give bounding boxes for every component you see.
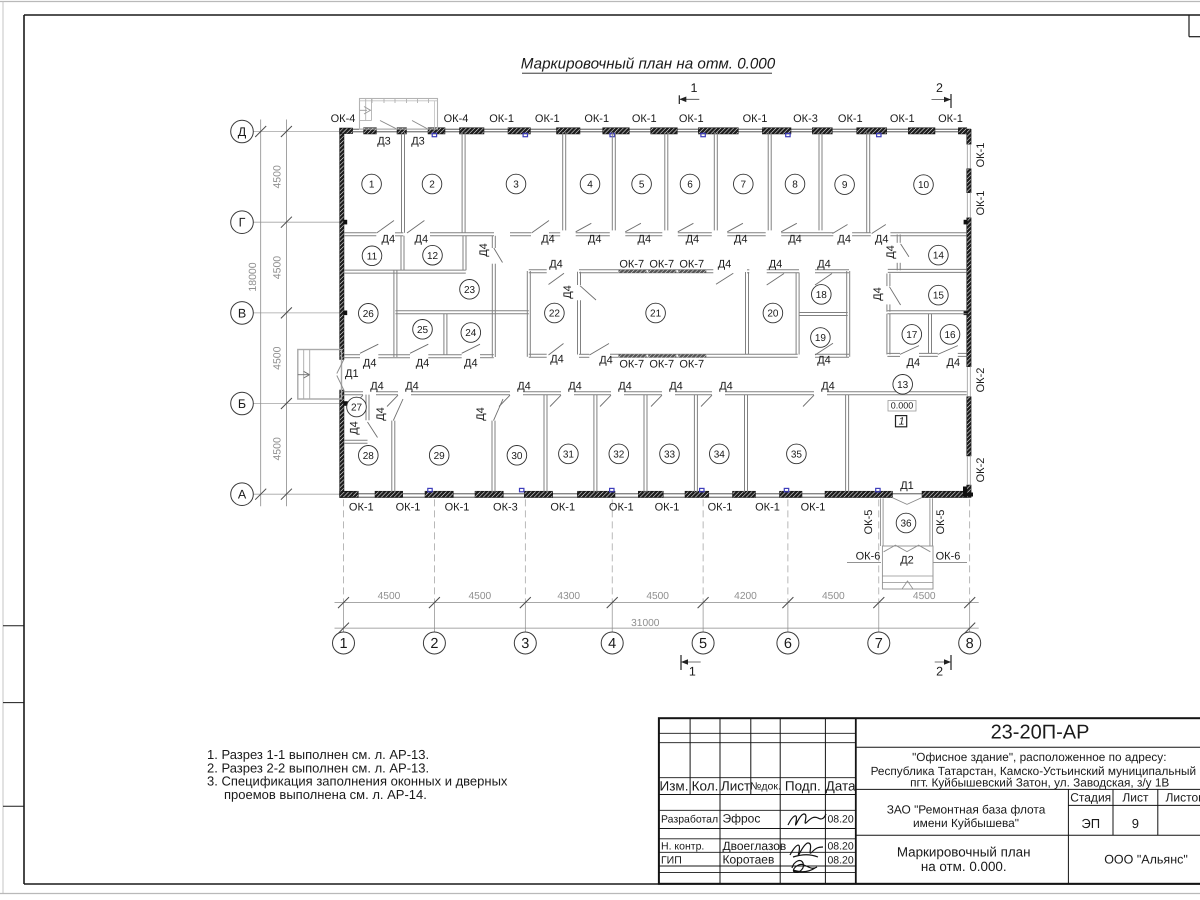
- svg-text:Маркировочный план на отм. 0.0: Маркировочный план на отм. 0.000: [521, 56, 776, 73]
- svg-text:ОК-4: ОК-4: [331, 113, 356, 125]
- svg-text:4500: 4500: [822, 591, 845, 602]
- svg-text:А: А: [238, 488, 247, 502]
- svg-text:Д4: Д4: [599, 355, 613, 367]
- svg-text:36: 36: [900, 519, 912, 530]
- svg-text:7: 7: [741, 180, 747, 191]
- svg-text:ОК-3: ОК-3: [793, 113, 818, 125]
- svg-text:1: 1: [691, 81, 698, 95]
- svg-text:пгт. Куйбышевский Затон, ул. З: пгт. Куйбышевский Затон, ул. Заводская, …: [910, 775, 1169, 789]
- svg-text:33: 33: [664, 450, 676, 461]
- svg-text:4500: 4500: [378, 591, 401, 602]
- svg-text:ОК-1: ОК-1: [838, 113, 863, 125]
- svg-text:Д4: Д4: [416, 358, 430, 370]
- svg-text:Н. контр.: Н. контр.: [661, 840, 704, 852]
- svg-text:8: 8: [966, 636, 974, 652]
- svg-text:ОК-1: ОК-1: [708, 502, 733, 514]
- svg-text:Д4: Д4: [618, 380, 632, 392]
- svg-text:Стадия: Стадия: [1070, 790, 1111, 804]
- svg-text:ООО "Альянс": ООО "Альянс": [1104, 853, 1188, 867]
- svg-text:2: 2: [936, 665, 943, 679]
- svg-text:ЗАО "Ремонтная база флота: ЗАО "Ремонтная база флота: [887, 803, 1046, 817]
- svg-text:Кол.: Кол.: [692, 779, 719, 794]
- svg-text:Коротаев: Коротаев: [723, 853, 775, 867]
- svg-text:ОК-1: ОК-1: [445, 502, 470, 514]
- svg-text:Д4: Д4: [349, 421, 361, 435]
- svg-text:Подп.: Подп.: [785, 779, 821, 794]
- svg-text:20: 20: [767, 309, 779, 320]
- svg-text:4500: 4500: [271, 437, 283, 461]
- svg-text:на отм. 0.000.: на отм. 0.000.: [921, 859, 1007, 874]
- svg-text:32: 32: [613, 450, 625, 461]
- svg-text:ОК-5: ОК-5: [935, 510, 947, 535]
- svg-text:23-20П-АР: 23-20П-АР: [991, 722, 1090, 744]
- svg-text:1: 1: [339, 636, 347, 652]
- svg-text:26: 26: [363, 309, 375, 320]
- svg-text:ОК-1: ОК-1: [550, 502, 575, 514]
- svg-text:ОК-1: ОК-1: [890, 113, 915, 125]
- svg-text:Д4: Д4: [718, 258, 732, 270]
- svg-text:Листов: Листов: [1166, 790, 1200, 804]
- svg-text:ОК-2: ОК-2: [975, 458, 987, 483]
- svg-text:ОК-7: ОК-7: [619, 258, 644, 270]
- svg-text:Д3: Д3: [411, 136, 425, 148]
- svg-text:ОК-1: ОК-1: [975, 143, 987, 168]
- svg-text:14: 14: [933, 251, 945, 262]
- svg-text:5: 5: [639, 180, 645, 191]
- svg-text:Д4: Д4: [370, 380, 384, 392]
- svg-text:31: 31: [563, 450, 575, 461]
- svg-text:Д4: Д4: [550, 354, 564, 366]
- svg-text:ОК-1: ОК-1: [975, 191, 987, 216]
- svg-text:ОК-1: ОК-1: [349, 502, 374, 514]
- svg-text:15: 15: [933, 291, 945, 302]
- svg-text:Д4: Д4: [517, 380, 531, 392]
- svg-text:Д4: Д4: [375, 407, 387, 421]
- svg-text:30: 30: [511, 451, 523, 462]
- svg-text:3: 3: [521, 636, 529, 652]
- svg-text:ОК-1: ОК-1: [584, 113, 609, 125]
- svg-text:Д4: Д4: [719, 380, 733, 392]
- svg-text:9: 9: [1132, 816, 1139, 831]
- svg-text:Д4: Д4: [872, 287, 884, 301]
- svg-text:Д4: Д4: [885, 245, 897, 259]
- svg-text:27: 27: [351, 403, 363, 414]
- svg-text:ОК-1: ОК-1: [489, 113, 514, 125]
- svg-text:Д1: Д1: [345, 368, 359, 380]
- svg-text:ОК-7: ОК-7: [649, 258, 674, 270]
- svg-text:Д4: Д4: [788, 233, 802, 245]
- svg-text:1: 1: [369, 180, 375, 191]
- svg-text:ОК-7: ОК-7: [619, 359, 644, 371]
- svg-text:2: 2: [429, 180, 435, 191]
- svg-text:Дата: Дата: [826, 779, 856, 794]
- svg-text:10: 10: [918, 180, 930, 191]
- svg-text:ГИП: ГИП: [661, 855, 682, 867]
- svg-text:ОК-1: ОК-1: [743, 113, 768, 125]
- svg-text:ОК-7: ОК-7: [649, 359, 674, 371]
- svg-text:Д4: Д4: [562, 285, 574, 299]
- svg-text:ОК-7: ОК-7: [679, 258, 704, 270]
- svg-text:имени Куйбышева": имени Куйбышева": [913, 816, 1019, 830]
- svg-text:"Офисное здание", расположенно: "Офисное здание", расположенное по адрес…: [912, 750, 1166, 764]
- svg-text:ОК-2: ОК-2: [975, 368, 987, 393]
- svg-text:ОК-1: ОК-1: [609, 502, 634, 514]
- svg-text:3: 3: [513, 180, 519, 191]
- svg-text:4500: 4500: [271, 346, 283, 370]
- svg-text:Д4: Д4: [549, 258, 563, 270]
- svg-text:28: 28: [363, 451, 375, 462]
- svg-text:ОК-4: ОК-4: [444, 113, 469, 125]
- svg-text:Д4: Д4: [541, 233, 555, 245]
- svg-text:Д4: Д4: [769, 258, 783, 270]
- svg-text:Д4: Д4: [686, 233, 700, 245]
- svg-text:Д4: Д4: [875, 233, 889, 245]
- svg-text:21: 21: [650, 309, 662, 320]
- svg-text:25: 25: [417, 325, 429, 336]
- svg-text:Д4: Д4: [669, 380, 683, 392]
- svg-text:4500: 4500: [271, 165, 283, 189]
- svg-text:08.20: 08.20: [827, 855, 853, 867]
- svg-text:Д: Д: [238, 125, 247, 139]
- svg-text:Разработал: Разработал: [661, 814, 718, 826]
- svg-text:2: 2: [430, 636, 438, 652]
- svg-text:Д4: Д4: [947, 357, 961, 369]
- svg-text:Д4: Д4: [405, 380, 419, 392]
- svg-text:16: 16: [944, 330, 956, 341]
- svg-text:Д4: Д4: [363, 358, 377, 370]
- svg-text:ОК-1: ОК-1: [938, 113, 963, 125]
- svg-text:24: 24: [465, 328, 477, 339]
- svg-text:2: 2: [936, 81, 943, 95]
- svg-text:ОК-6: ОК-6: [936, 551, 961, 563]
- svg-text:Д4: Д4: [817, 355, 831, 367]
- svg-text:ОК-6: ОК-6: [856, 551, 881, 563]
- svg-text:8: 8: [792, 180, 798, 191]
- svg-text:4: 4: [587, 180, 593, 191]
- svg-text:Д2: Д2: [900, 555, 914, 567]
- svg-text:34: 34: [714, 450, 726, 461]
- svg-text:08.20: 08.20: [827, 814, 853, 826]
- svg-text:Д4: Д4: [907, 357, 921, 369]
- svg-text:Лист: Лист: [721, 779, 750, 794]
- svg-text:08.20: 08.20: [827, 840, 853, 852]
- svg-text:Д4: Д4: [475, 407, 487, 421]
- svg-text:1: 1: [689, 665, 696, 679]
- svg-text:Д4: Д4: [821, 380, 835, 392]
- svg-text:ЭП: ЭП: [1081, 816, 1100, 831]
- svg-text:ОК-3: ОК-3: [493, 502, 518, 514]
- svg-text:Д4: Д4: [568, 380, 582, 392]
- svg-text:4200: 4200: [734, 591, 757, 602]
- svg-text:Д4: Д4: [817, 258, 831, 270]
- svg-text:ОК-1: ОК-1: [396, 502, 421, 514]
- svg-text:№док.: №док.: [750, 781, 781, 793]
- svg-text:Б: Б: [238, 397, 246, 411]
- svg-text:ОК-1: ОК-1: [679, 113, 704, 125]
- svg-text:Д1: Д1: [900, 480, 914, 492]
- svg-text:4300: 4300: [557, 591, 580, 602]
- svg-text:18000: 18000: [247, 262, 259, 291]
- svg-text:Д4: Д4: [638, 233, 652, 245]
- svg-text:23: 23: [464, 285, 476, 296]
- svg-text:ОК-1: ОК-1: [535, 113, 560, 125]
- svg-text:4: 4: [608, 636, 616, 652]
- svg-text:6: 6: [687, 180, 693, 191]
- svg-text:ОК-1: ОК-1: [655, 502, 680, 514]
- svg-text:Д3: Д3: [377, 136, 391, 148]
- svg-text:5: 5: [699, 636, 707, 652]
- svg-text:Лист: Лист: [1122, 790, 1149, 804]
- svg-text:29: 29: [434, 451, 446, 462]
- svg-text:9: 9: [842, 180, 848, 191]
- svg-text:Эфрос: Эфрос: [723, 812, 761, 826]
- svg-text:ОК-5: ОК-5: [863, 510, 875, 535]
- svg-text:6: 6: [784, 636, 792, 652]
- svg-text:18: 18: [816, 290, 828, 301]
- svg-text:Д4: Д4: [478, 243, 490, 257]
- svg-text:12: 12: [427, 251, 439, 262]
- svg-text:Д4: Д4: [837, 233, 851, 245]
- svg-text:В: В: [238, 306, 246, 320]
- svg-text:Маркировочный план: Маркировочный план: [897, 845, 1031, 860]
- svg-text:Г: Г: [239, 216, 246, 230]
- svg-text:4500: 4500: [469, 591, 492, 602]
- svg-text:13: 13: [897, 380, 909, 391]
- svg-text:проемов выполнена см. л. АР-14: проемов выполнена см. л. АР-14.: [224, 787, 427, 802]
- svg-text:ОК-7: ОК-7: [679, 359, 704, 371]
- svg-text:19: 19: [815, 333, 827, 344]
- svg-text:22: 22: [549, 309, 561, 320]
- svg-text:Д4: Д4: [415, 233, 429, 245]
- svg-text:4500: 4500: [271, 256, 283, 280]
- svg-text:4500: 4500: [646, 591, 669, 602]
- svg-text:0.000: 0.000: [891, 401, 914, 411]
- svg-text:Двоеглазов: Двоеглазов: [723, 839, 787, 853]
- svg-text:35: 35: [791, 450, 803, 461]
- svg-text:ОК-1: ОК-1: [632, 113, 657, 125]
- svg-text:Д4: Д4: [588, 233, 602, 245]
- svg-text:Д4: Д4: [734, 233, 748, 245]
- svg-text:11: 11: [367, 251, 378, 262]
- svg-text:ОК-1: ОК-1: [801, 502, 826, 514]
- svg-text:17: 17: [906, 330, 918, 341]
- svg-text:ОК-1: ОК-1: [755, 502, 780, 514]
- svg-text:7: 7: [875, 636, 883, 652]
- svg-text:Д4: Д4: [382, 233, 396, 245]
- svg-text:31000: 31000: [631, 618, 660, 629]
- svg-text:Изм.: Изм.: [660, 779, 689, 794]
- svg-text:Д4: Д4: [464, 358, 478, 370]
- svg-text:1: 1: [899, 415, 905, 427]
- svg-text:4500: 4500: [913, 591, 936, 602]
